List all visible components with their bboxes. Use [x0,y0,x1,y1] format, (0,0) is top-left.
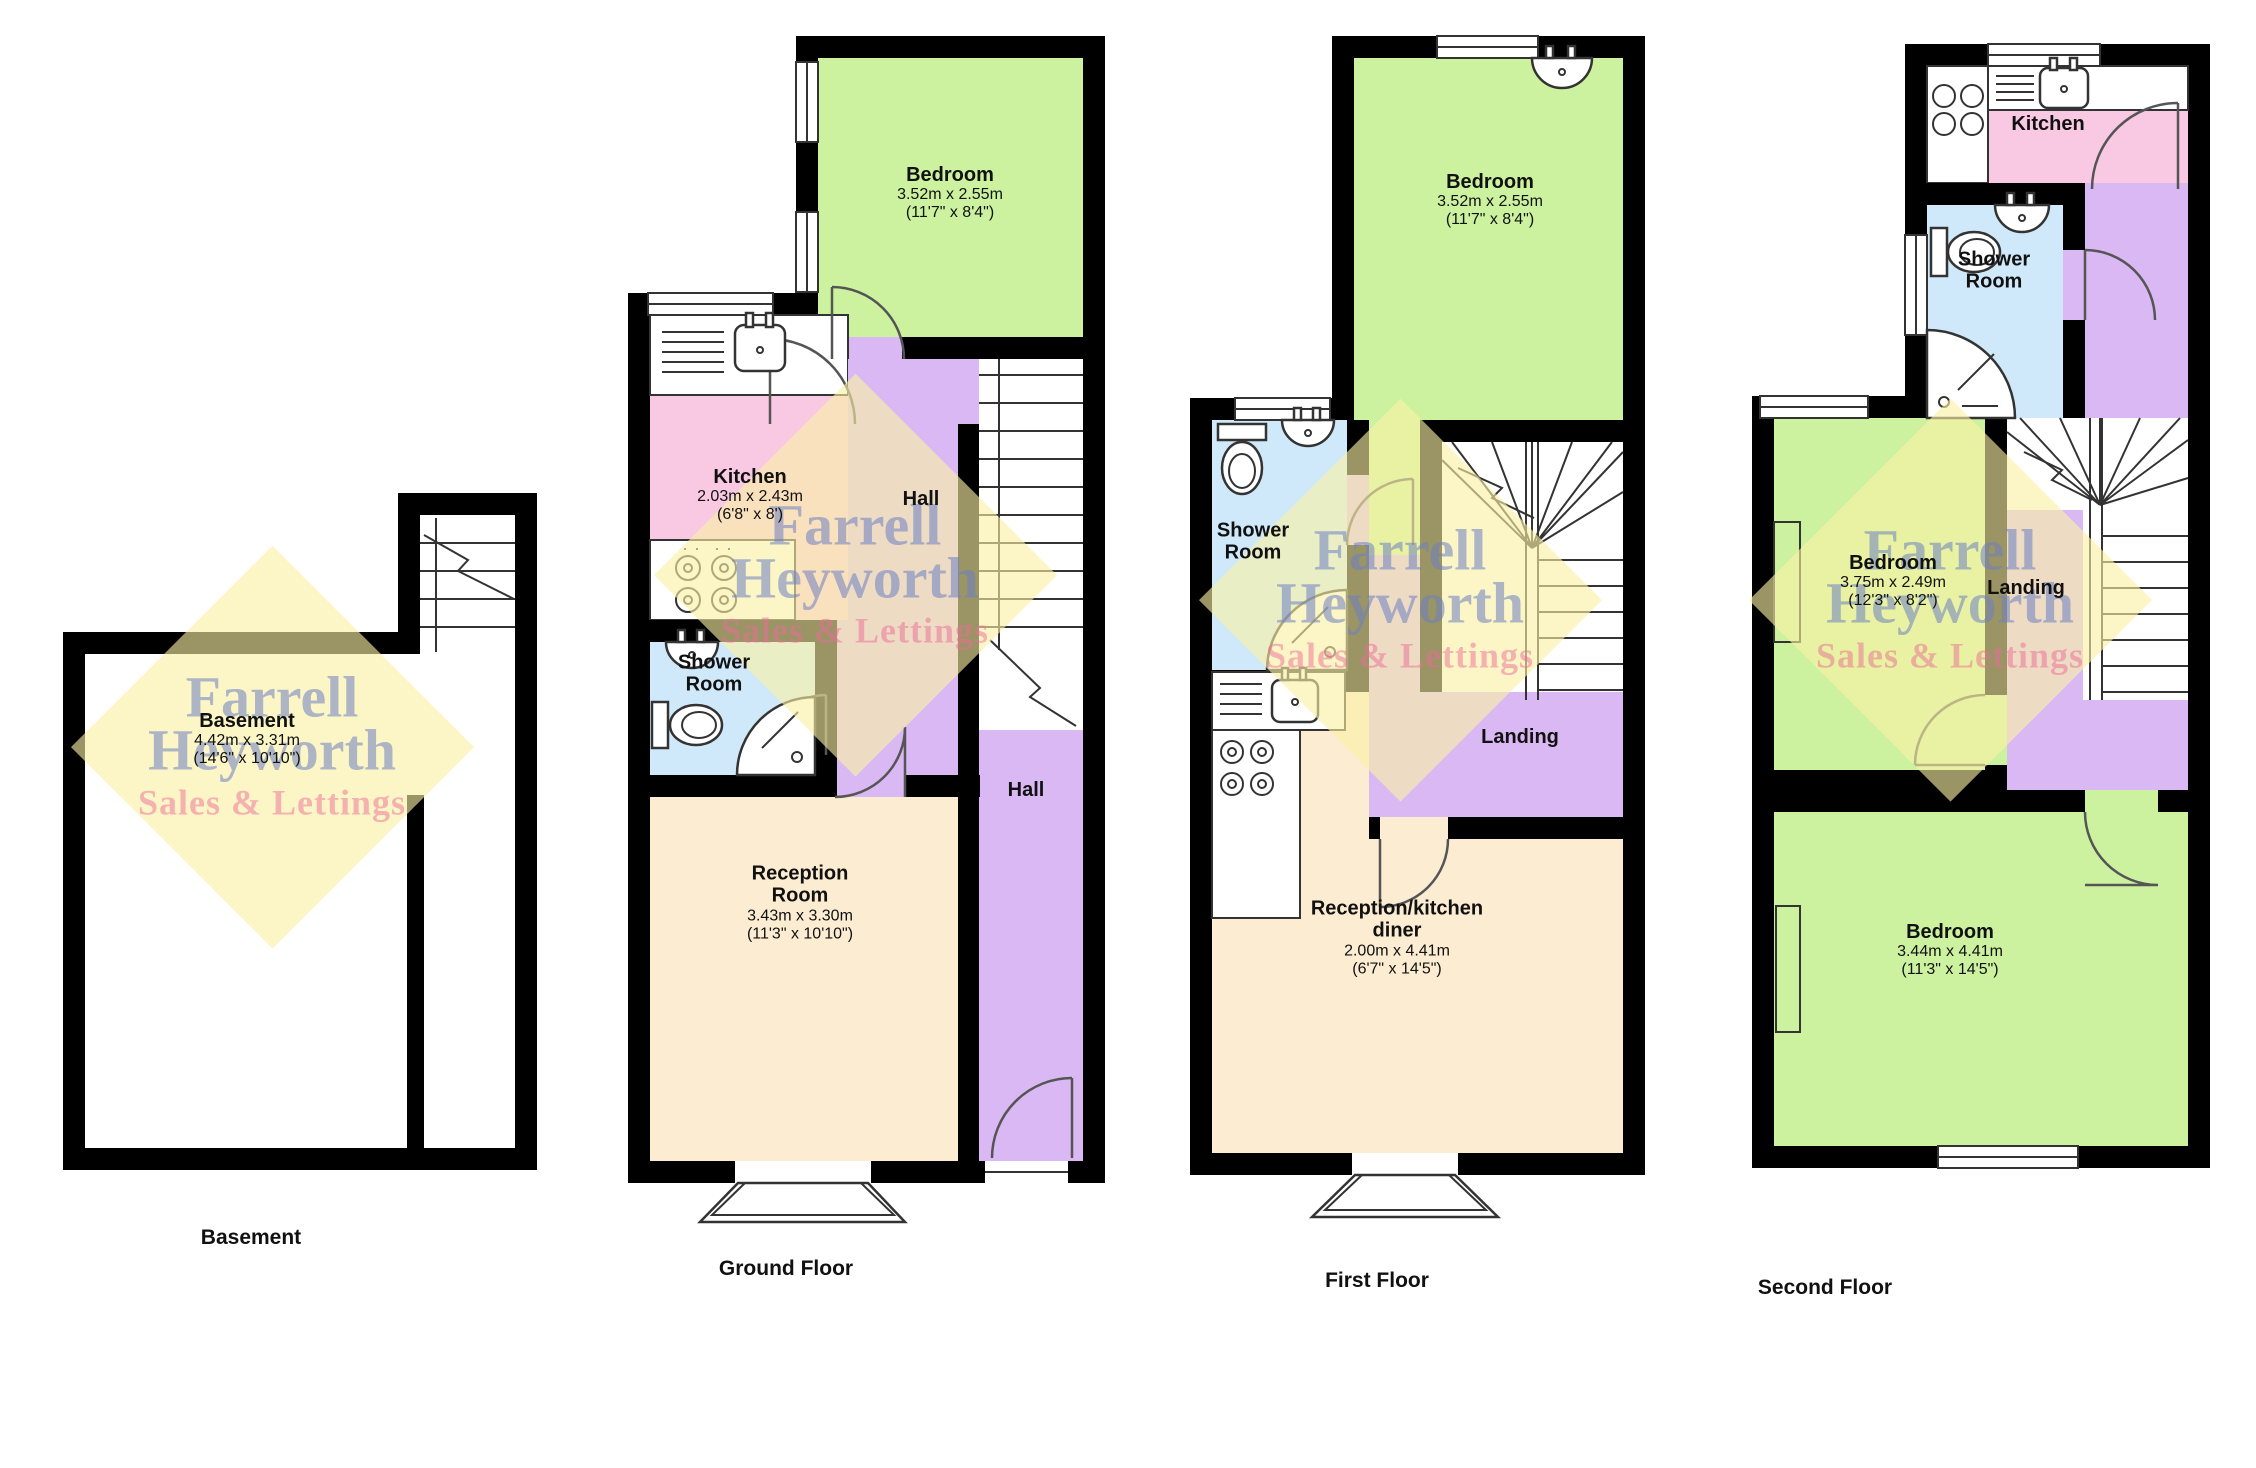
ground-stairwell [979,359,1083,730]
bedroom1-wall-b [1985,765,2007,790]
bedroom2-top-wall-a [1774,790,2085,812]
room-landing-second-lower [2007,700,2188,790]
landing-second-strip [2085,183,2188,418]
room-bedroom-first [1354,58,1623,420]
room-label-landing-second: Landing [1971,577,2081,599]
basement-stairwell [420,515,515,655]
room-label-basement: Basement 4.42m x 3.31m (14'6" x 10'10") [152,710,342,768]
shower-first-wall-a [1347,420,1369,475]
room-label-hall-upper: Hall [876,488,966,510]
room-label-bedroom-first: Bedroom 3.52m x 2.55m (11'7" x 8'4") [1385,171,1595,229]
room-label-shower-first: Shower Room [1203,520,1303,565]
toilet-icon [652,702,722,748]
shower-first-wall-b [1347,545,1369,692]
shower-second-door-opening [2063,250,2085,320]
room-label-hall-lower: Hall [981,779,1071,801]
landing-first-strip [1369,555,1420,692]
second-stairwell-flight [2083,510,2188,700]
room-label-shower-ground: Shower Room [664,652,764,697]
floorplan-page: Farrell Heyworth Sales & Lettings Farrel… [0,0,2256,1468]
room-label-bedroom2-second: Bedroom 3.44m x 4.41m (11'3" x 14'5") [1845,921,2055,979]
stairs-first-wall [1420,442,1442,700]
bedroom1-door-opening [1985,695,2007,765]
bedroom1-wall-a [1985,418,2007,695]
landing-wall-a [1369,817,1380,839]
second-stairwell-fan [2007,418,2188,510]
room-label-bedroom1-second: Bedroom 3.75m x 2.49m (12'3" x 8'2") [1808,552,1978,610]
hall-divider-wall [958,424,979,1161]
floor-caption-first: First Floor [1325,1269,1429,1293]
kitchen-second-hob-counter [1927,66,1988,183]
room-label-reception-ground: Reception Room 3.43m x 3.30m (11'3" x 10… [725,863,875,944]
bedroom2-top-wall-b [2158,790,2188,812]
toilet-icon [1218,424,1266,494]
window-icon [648,62,818,315]
room-landing-first [1369,692,1623,817]
room-hall-mid [848,424,958,620]
room-label-reception-first: Reception/kitchen diner 2.00m x 4.41m (6… [1297,898,1497,979]
room-label-landing-first: Landing [1460,726,1580,748]
kitchen-second-bottom-wall [1905,183,2085,205]
shower-second-wall-a [2063,205,2085,250]
sink-icon [1212,668,1345,730]
room-reception-ground [650,797,958,1161]
hob-icon [1212,730,1300,918]
shower-wall-a [815,642,837,690]
room-label-shower-second: Shower Room [1944,249,2044,294]
shower-second-wall-b [2063,320,2085,418]
reception-top-wall-left [628,775,837,797]
floor-caption-second: Second Floor [1758,1276,1892,1300]
bedroom2-door-opening [2085,790,2158,812]
room-label-kitchen-second: Kitchen [1993,113,2103,135]
room-label-kitchen-ground: Kitchen 2.03m x 2.43m (6'8" x 8') [660,466,840,524]
room-label-bedroom-ground: Bedroom 3.52m x 2.55m (11'7" x 8'4") [845,164,1055,222]
room-hall-inner [837,620,958,797]
floor-caption-ground: Ground Floor [719,1257,853,1281]
landing-second-passage [2085,396,2188,418]
basement-plan [63,493,537,1170]
basement-internal-wall [407,795,424,1148]
kitchen-bottom-wall [628,620,837,642]
landing-wall-b [1448,817,1623,839]
floor-caption-basement: Basement [201,1226,301,1250]
